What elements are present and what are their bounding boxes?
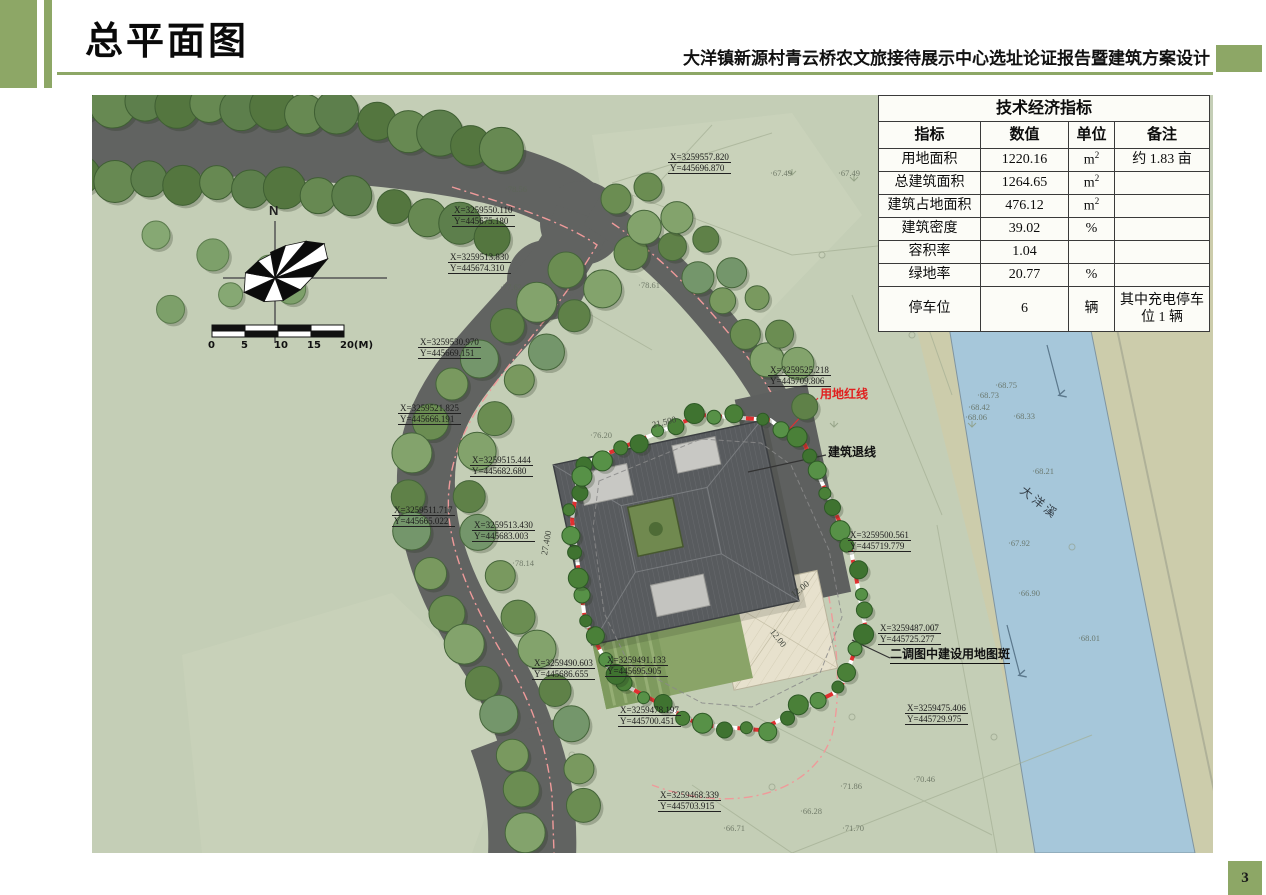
tree: [314, 95, 358, 134]
tree: [503, 771, 539, 807]
table-cell: 建筑密度: [879, 218, 981, 241]
page-number: 3: [1228, 861, 1262, 895]
coord-x: X=3259511.717: [392, 505, 455, 516]
tree: [465, 666, 499, 700]
table-cell: m2: [1069, 149, 1115, 172]
landuse-patch-annotation: 二调图中建设用地图斑: [890, 645, 1010, 664]
coordinate-label: X=3259475.406Y=445729.975: [905, 703, 968, 725]
table-row: 绿地率20.77%: [879, 264, 1210, 287]
tree: [580, 615, 592, 627]
tree: [504, 365, 534, 395]
table-row: 用地面积1220.16m2约 1.83 亩: [879, 149, 1210, 172]
tree: [479, 127, 523, 171]
tree: [568, 568, 588, 588]
coordinate-label: X=3259557.820Y=445696.870: [668, 152, 731, 174]
tree: [757, 413, 769, 425]
coordinate-label: X=3259468.339Y=445703.915: [658, 790, 721, 812]
tree: [528, 334, 564, 370]
tree: [480, 695, 518, 733]
header-green-bar: [44, 0, 52, 88]
table-cell: 建筑占地面积: [879, 195, 981, 218]
header-green-chip: [1216, 45, 1262, 72]
tree: [142, 221, 170, 249]
tree: [837, 664, 855, 682]
tree: [601, 184, 631, 214]
compass-north-label: N: [269, 203, 278, 218]
tree: [478, 402, 512, 436]
coord-y: Y=445682.680: [470, 466, 533, 477]
tree: [392, 433, 432, 473]
elevation-mark: ·78.61: [638, 280, 660, 290]
coord-y: Y=445669.151: [418, 348, 481, 359]
tree: [710, 288, 736, 314]
table-cell: 1264.65: [981, 172, 1069, 195]
tree: [630, 435, 648, 453]
tree: [854, 624, 874, 644]
table-cell: 辆: [1069, 287, 1115, 332]
coordinate-label: X=3259550.110Y=445675.180: [452, 205, 515, 227]
table-row: 建筑占地面积476.12m2: [879, 195, 1210, 218]
tree: [558, 300, 590, 332]
tree: [803, 449, 817, 463]
tree: [332, 176, 372, 216]
tree: [730, 319, 760, 349]
tree: [453, 481, 485, 513]
coord-y: Y=445703.915: [658, 801, 721, 812]
coord-x: X=3259525.218: [768, 365, 831, 376]
tree: [819, 487, 831, 499]
indicators-table-header: 指标数值单位备注: [879, 122, 1210, 149]
tree: [773, 422, 789, 438]
tree: [219, 283, 243, 307]
coord-x: X=3259490.603: [532, 658, 595, 669]
tree: [634, 173, 662, 201]
tree: [563, 504, 575, 516]
coordinate-label: X=3259487.007Y=445725.277: [878, 623, 941, 645]
tree: [725, 405, 743, 423]
elevation-mark: ·67.49: [770, 168, 792, 178]
coord-y: Y=445666.191: [398, 414, 461, 425]
tree: [792, 394, 818, 420]
tree: [157, 295, 185, 323]
coordinate-label: X=3259490.603Y=445686.655: [532, 658, 595, 680]
tree: [377, 190, 411, 224]
table-cell: 1.04: [981, 241, 1069, 264]
coordinate-label: X=3259478.197Y=445700.451: [618, 705, 681, 727]
coord-y: Y=445695.905: [605, 666, 668, 677]
tree: [658, 233, 686, 261]
tree: [614, 441, 628, 455]
tree: [505, 813, 545, 853]
tree: [787, 427, 807, 447]
coord-x: X=3259550.110: [452, 205, 515, 216]
elevation-mark: ·78.56: [505, 184, 527, 194]
coord-y: Y=445725.277: [878, 634, 941, 645]
elevation-mark: ·66.90: [1018, 588, 1040, 598]
elevation-mark: ·66.28: [800, 806, 822, 816]
tree: [740, 722, 752, 734]
tree: [832, 681, 844, 693]
column-header: 指标: [879, 122, 981, 149]
coordinate-label: X=3259530.970Y=445669.151: [418, 337, 481, 359]
tree: [693, 713, 713, 733]
tree: [131, 161, 167, 197]
tree: [850, 561, 868, 579]
table-cell: 1220.16: [981, 149, 1069, 172]
table-cell: [1069, 241, 1115, 264]
scale-tick-label: 0: [208, 340, 215, 351]
elevation-mark: ·68.01: [1078, 633, 1100, 643]
tree: [824, 499, 840, 515]
table-cell: 用地面积: [879, 149, 981, 172]
tree: [848, 642, 862, 656]
table-cell: %: [1069, 264, 1115, 287]
table-row: 总建筑面积1264.65m2: [879, 172, 1210, 195]
tree: [485, 561, 515, 591]
elevation-mark: ·70.46: [913, 774, 935, 784]
coordinate-label: X=3259521.825Y=445666.191: [398, 403, 461, 425]
elevation-mark: ·76.20: [590, 430, 612, 440]
column-header: 备注: [1115, 122, 1210, 149]
coord-y: Y=445675.180: [452, 216, 515, 227]
coord-y: Y=445700.451: [618, 716, 681, 727]
table-cell: 总建筑面积: [879, 172, 981, 195]
coord-x: X=3259513.830: [448, 252, 511, 263]
header-green-block: [0, 0, 37, 88]
coord-y: Y=445719.779: [848, 541, 911, 552]
table-cell: [1115, 264, 1210, 287]
tree: [584, 270, 622, 308]
coord-x: X=3259487.007: [878, 623, 941, 634]
coord-x: X=3259515.444: [470, 455, 533, 466]
table-cell: 约 1.83 亩: [1115, 149, 1210, 172]
table-cell: 476.12: [981, 195, 1069, 218]
tree: [810, 692, 826, 708]
tree: [94, 160, 136, 202]
indicators-table-title: 技术经济指标: [879, 96, 1210, 122]
coordinate-label: X=3259511.717Y=445665.022: [392, 505, 455, 527]
tree: [572, 466, 592, 486]
coordinate-label: X=3259513.430Y=445683.003: [472, 520, 535, 542]
tree: [717, 258, 747, 288]
elevation-mark: ·68.42: [968, 402, 990, 412]
table-cell: m2: [1069, 172, 1115, 195]
table-cell: m2: [1069, 195, 1115, 218]
table-cell: [1115, 195, 1210, 218]
elevation-mark: ·67.92: [1008, 538, 1030, 548]
tree: [163, 165, 203, 205]
tree: [501, 600, 535, 634]
coord-x: X=3259530.970: [418, 337, 481, 348]
table-cell: 20.77: [981, 264, 1069, 287]
courtyard: [628, 498, 683, 556]
coord-x: X=3259478.197: [618, 705, 681, 716]
tree: [808, 461, 826, 479]
tree: [592, 451, 612, 471]
tree: [562, 527, 580, 545]
table-cell: 6: [981, 287, 1069, 332]
tree: [693, 226, 719, 252]
coord-y: Y=445665.022: [392, 516, 455, 527]
elevation-mark: ·78.14: [512, 558, 534, 568]
table-row: 停车位6辆其中充电停车位 1 辆: [879, 287, 1210, 332]
tree: [684, 404, 704, 424]
table-row: 容积率1.04: [879, 241, 1210, 264]
coord-x: X=3259521.825: [398, 403, 461, 414]
page-title: 总平面图: [85, 10, 249, 65]
scale-tick-label: 20(M): [340, 340, 373, 351]
tree: [627, 210, 661, 244]
coord-x: X=3259500.561: [848, 530, 911, 541]
elevation-mark: ·68.21: [1032, 466, 1054, 476]
table-cell: 其中充电停车位 1 辆: [1115, 287, 1210, 332]
table-cell: [1115, 172, 1210, 195]
scale-tick-label: 10: [274, 340, 288, 351]
coordinate-label: X=3259515.444Y=445682.680: [470, 455, 533, 477]
tree: [517, 282, 557, 322]
tree: [716, 722, 732, 738]
tree: [856, 602, 872, 618]
scale-tick-label: 15: [307, 340, 321, 351]
tree: [707, 410, 721, 424]
tree: [415, 558, 447, 590]
tree: [759, 723, 777, 741]
tree: [444, 624, 484, 664]
tree: [496, 739, 528, 771]
table-cell: [1115, 218, 1210, 241]
elevation-mark: ·67.49: [838, 168, 860, 178]
coord-x: X=3259468.339: [658, 790, 721, 801]
redline-annotation: 用地红线: [820, 385, 868, 402]
elevation-mark: ·71.86: [840, 781, 862, 791]
header-divider: [57, 72, 1213, 75]
tree: [781, 711, 795, 725]
tree: [300, 178, 336, 214]
tree: [661, 202, 693, 234]
coord-x: X=3259491.133: [605, 655, 668, 666]
tree: [856, 588, 868, 600]
scale-tick-label: 5: [241, 340, 248, 351]
elevation-mark: ·66.71: [723, 823, 745, 833]
coord-x: X=3259475.406: [905, 703, 968, 714]
coordinate-label: X=3259525.218Y=445709.806: [768, 365, 831, 387]
project-subtitle: 大洋镇新源村青云桥农文旅接待展示中心选址论证报告暨建筑方案设计: [683, 44, 1210, 69]
table-row: 建筑密度39.02%: [879, 218, 1210, 241]
elevation-mark: ·71.70: [842, 823, 864, 833]
scale-bar: [212, 325, 344, 337]
coord-x: X=3259513.430: [472, 520, 535, 531]
tree: [200, 166, 234, 200]
column-header: 数值: [981, 122, 1069, 149]
tree: [490, 309, 524, 343]
tree: [548, 252, 584, 288]
tree: [745, 286, 769, 310]
setback-annotation: 建筑退线: [828, 443, 876, 460]
tree: [564, 754, 594, 784]
elevation-mark: ·68.06: [965, 412, 987, 422]
tree: [553, 706, 589, 742]
tree: [197, 239, 229, 271]
coord-y: Y=445729.975: [905, 714, 968, 725]
coord-y: Y=445696.870: [668, 163, 731, 174]
elevation-mark: ·77.62: [500, 282, 522, 292]
tree: [566, 788, 600, 822]
tree: [638, 692, 650, 704]
table-cell: 停车位: [879, 287, 981, 332]
table-cell: 绿地率: [879, 264, 981, 287]
coord-y: Y=445683.003: [472, 531, 535, 542]
table-cell: 39.02: [981, 218, 1069, 241]
coord-y: Y=445674.310: [448, 263, 511, 274]
elevation-mark: ·68.73: [977, 390, 999, 400]
tree: [682, 262, 714, 294]
table-cell: [1115, 241, 1210, 264]
coordinate-label: X=3259491.133Y=445695.905: [605, 655, 668, 677]
elevation-mark: ·68.75: [995, 380, 1017, 390]
table-cell: %: [1069, 218, 1115, 241]
elevation-mark: ·68.33: [1013, 411, 1035, 421]
sheet-page: 总平面图 大洋镇新源村青云桥农文旅接待展示中心选址论证报告暨建筑方案设计: [0, 0, 1266, 895]
tree: [766, 320, 794, 348]
coord-y: Y=445686.655: [532, 669, 595, 680]
coord-x: X=3259557.820: [668, 152, 731, 163]
coordinate-label: X=3259500.561Y=445719.779: [848, 530, 911, 552]
table-cell: 容积率: [879, 241, 981, 264]
coordinate-label: X=3259513.830Y=445674.310: [448, 252, 511, 274]
indicators-table: 技术经济指标 指标数值单位备注 用地面积1220.16m2约 1.83 亩总建筑…: [878, 95, 1210, 332]
tree: [436, 368, 468, 400]
column-header: 单位: [1069, 122, 1115, 149]
